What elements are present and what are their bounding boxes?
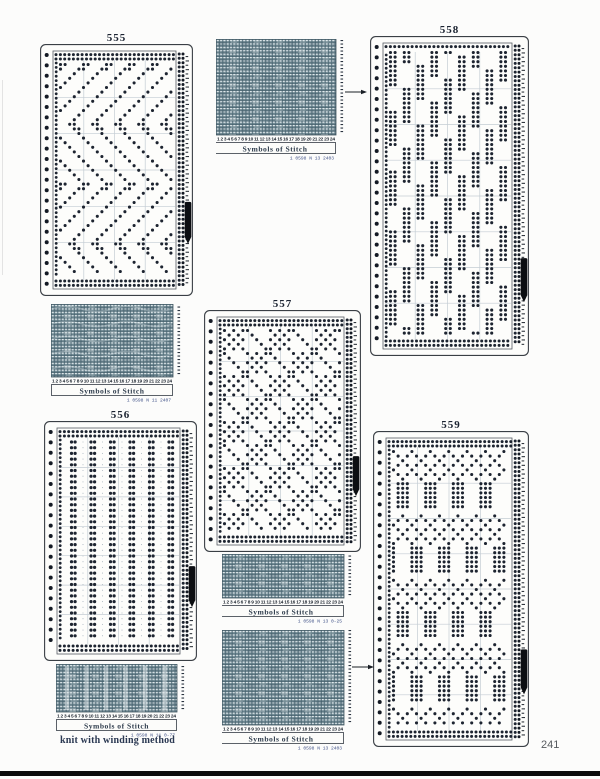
svg-text:1 0598 N 11 2407: 1 0598 N 11 2407: [127, 397, 171, 403]
svg-text:1 0598 N 13 0-25: 1 0598 N 13 0-25: [298, 618, 342, 624]
svg-text:Symbols of Stitch: Symbols of Stitch: [79, 386, 144, 395]
svg-text:1 0598 N 13 2403: 1 0598 N 13 2403: [298, 745, 342, 751]
svg-text:Symbols of Stitch: Symbols of Stitch: [242, 144, 307, 153]
svg-text:1 2 3 4 5 6 7 8 9 10 11 12 13: 1 2 3 4 5 6 7 8 9 10 11 12 13 14 15 16 1…: [52, 378, 172, 384]
svg-text:1 0598 N 13 2403: 1 0598 N 13 2403: [290, 155, 334, 161]
svg-text:Symbols of Stitch: Symbols of Stitch: [84, 721, 149, 730]
svg-text:1 2 3 4 5 6 7 8 9 10 11 12 13: 1 2 3 4 5 6 7 8 9 10 11 12 13 14 15 16 1…: [223, 599, 343, 605]
svg-text:1 2 3 4 5 6 7 8 9 10 11 12 13: 1 2 3 4 5 6 7 8 9 10 11 12 13 14 15 16 1…: [57, 713, 176, 719]
svg-text:Symbols of Stitch: Symbols of Stitch: [248, 734, 313, 743]
svg-text:1 2 3 4 5 6 7 8 9 10 11 12 13: 1 2 3 4 5 6 7 8 9 10 11 12 13 14 15 16 1…: [217, 136, 335, 142]
svg-text:Symbols of Stitch: Symbols of Stitch: [248, 607, 313, 616]
svg-text:1 2 3 4 5 6 7 8 9 10 11 12 13: 1 2 3 4 5 6 7 8 9 10 11 12 13 14 15 16 1…: [223, 726, 343, 732]
